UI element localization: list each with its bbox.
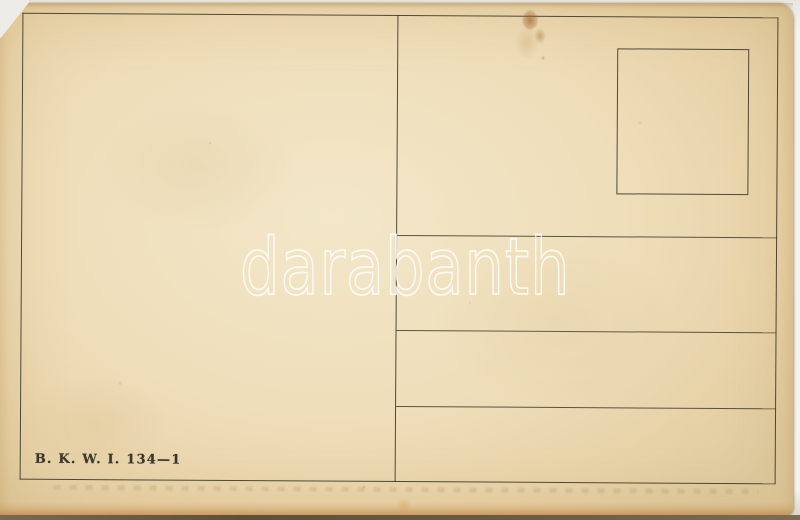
postcard-scan: B. K. W. I. 134—1 darabanth (0, 0, 800, 520)
darabanth-watermark: darabanth (240, 229, 570, 307)
frame-border-bottom (20, 479, 776, 485)
address-line (397, 330, 777, 334)
paper-top-edge-shading (0, 3, 793, 8)
scan-edge-shadow (0, 515, 800, 520)
frame-border-left (20, 13, 24, 480)
stamp-box (616, 48, 749, 195)
frame-border-right (775, 17, 779, 484)
ghost-offset-print (54, 485, 759, 494)
publisher-imprint: B. K. W. I. 134—1 (35, 452, 182, 468)
paper-bottom-edge-shading (0, 502, 793, 516)
frame-border-top (22, 13, 778, 19)
address-line (396, 406, 776, 410)
